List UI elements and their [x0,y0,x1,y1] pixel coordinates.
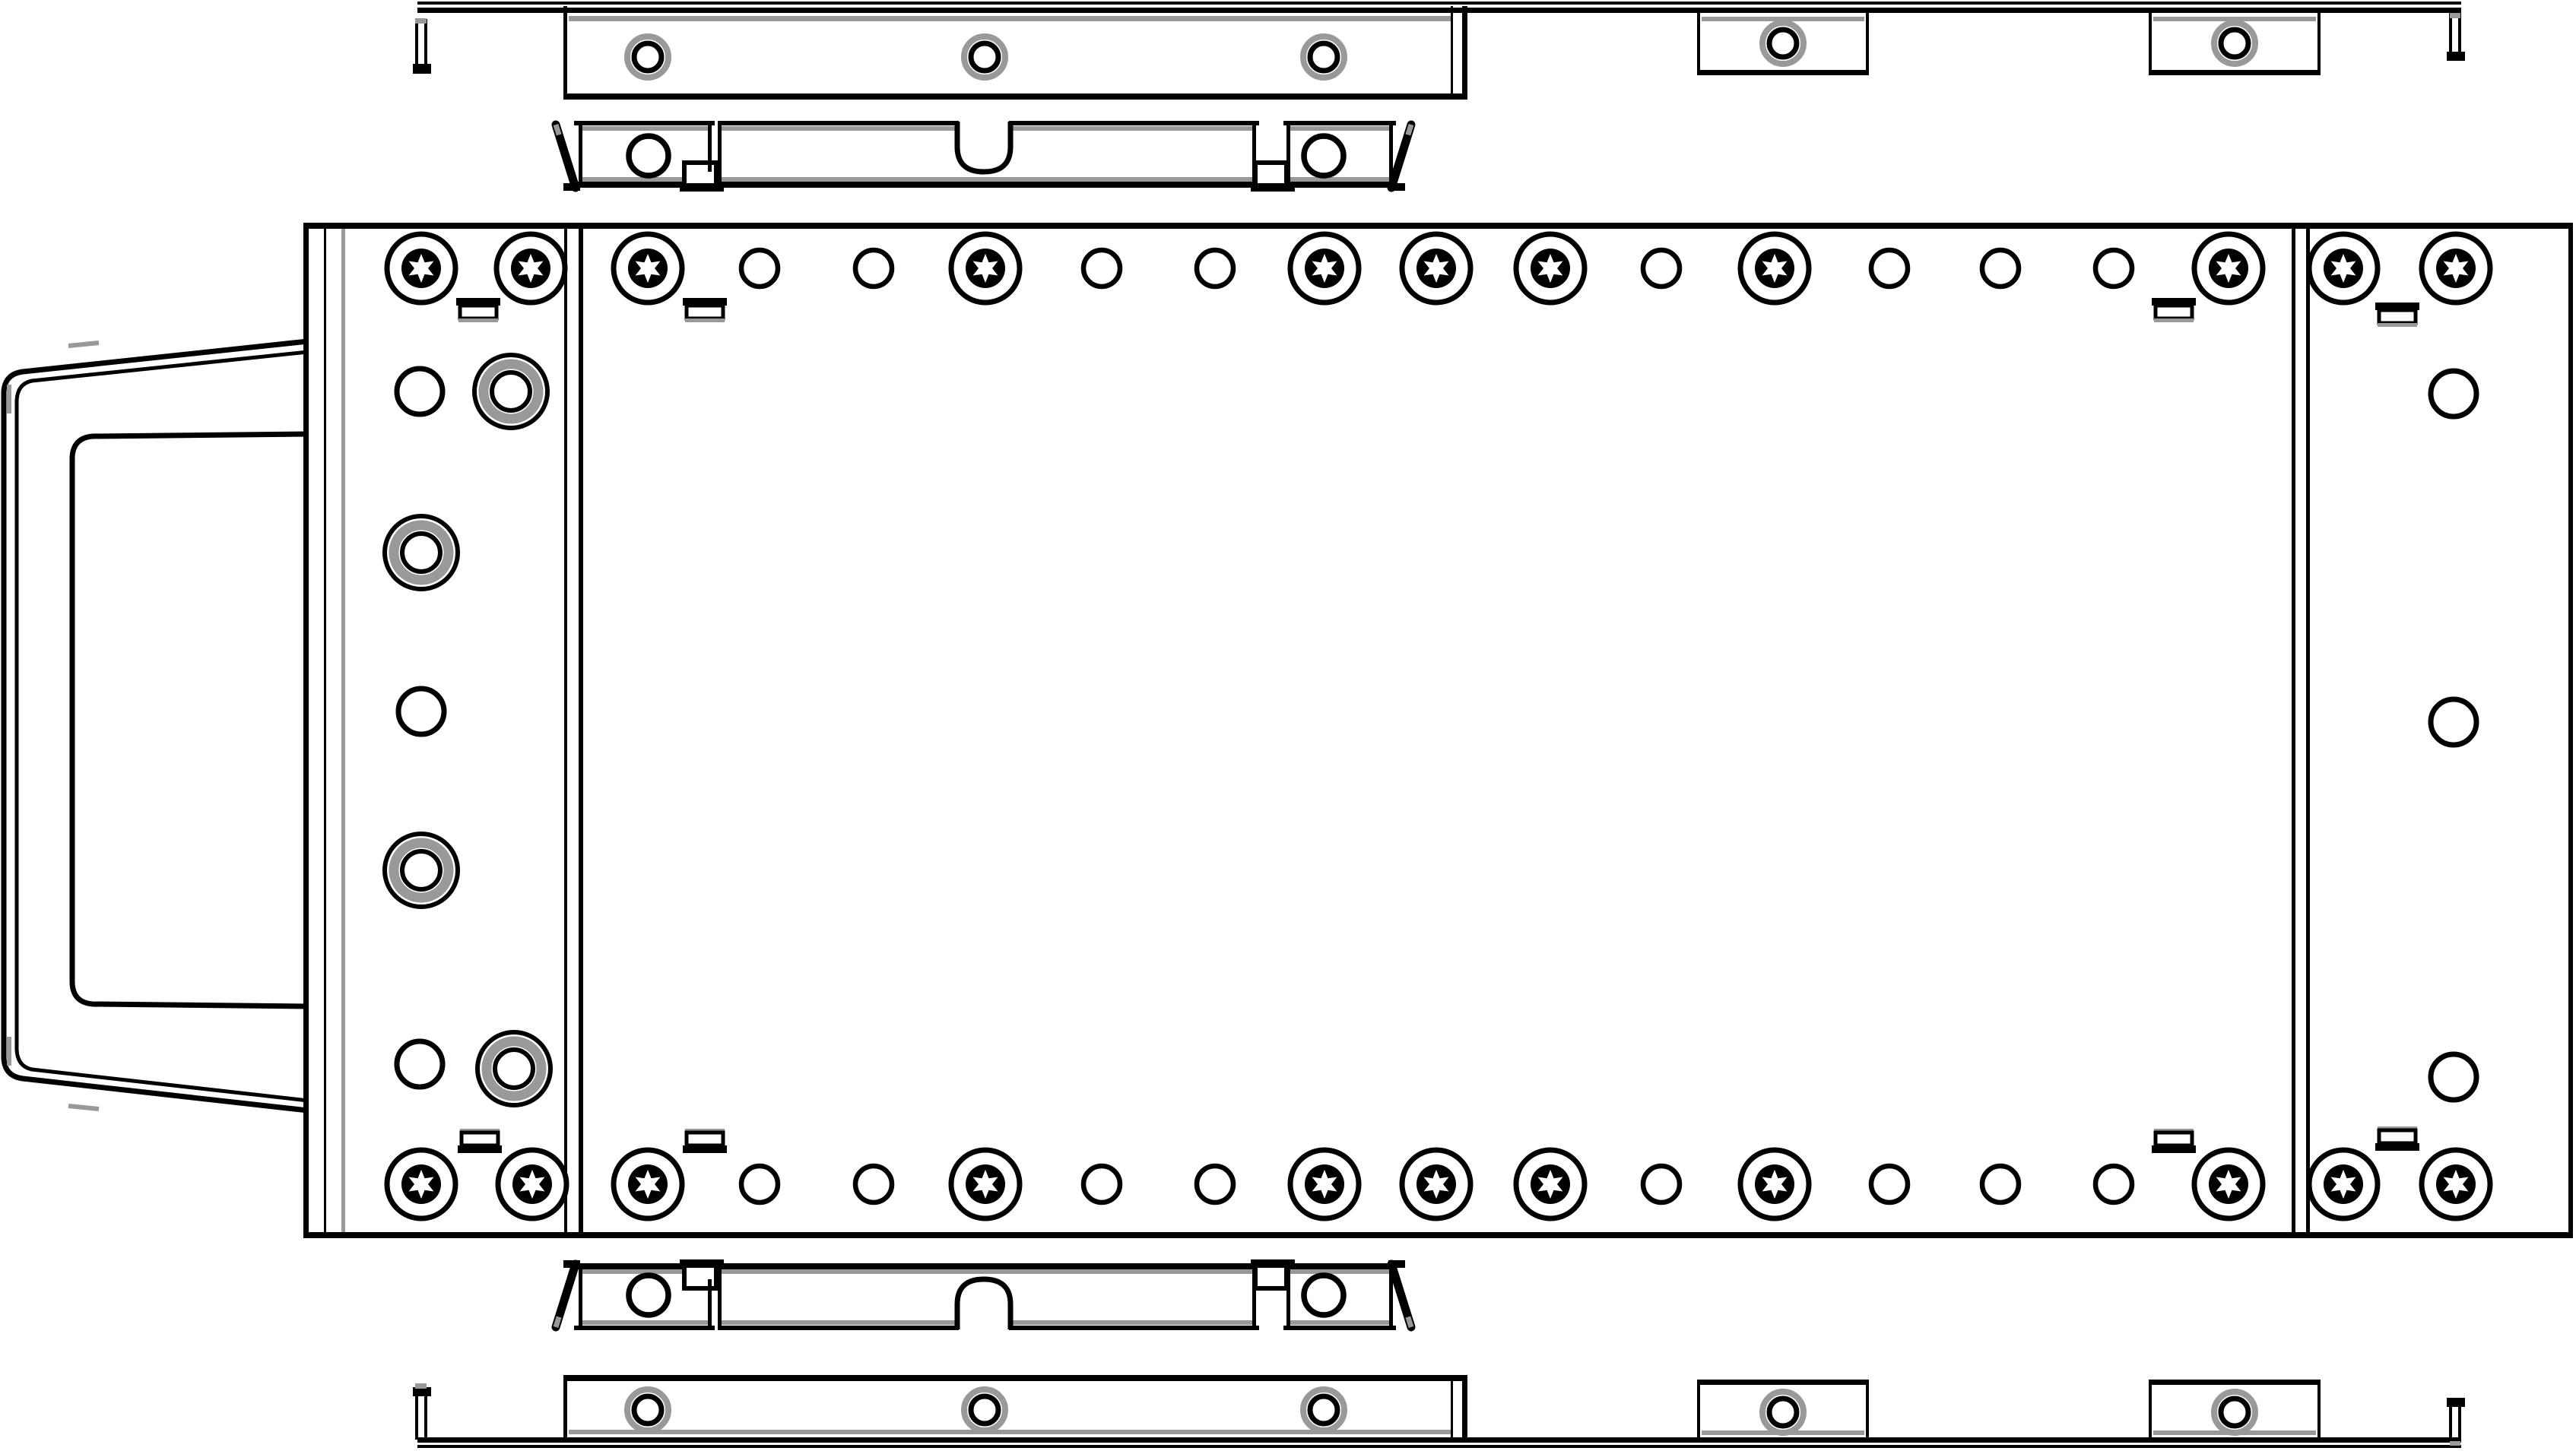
bracket-section-top-edge [574,121,715,125]
screw-hole [398,689,444,734]
clip-tip-highlight [556,125,559,135]
torx-screw [1740,1150,1809,1218]
rail-hook-foot [2447,1398,2465,1407]
chassis-plate [303,223,2573,1238]
rail-hook-highlight [415,18,427,24]
bracket-section-top-accent [1286,1269,1393,1274]
torx-screw [2194,1150,2263,1218]
rail-tab-edge [2317,13,2321,75]
bracket-step-notch-bar [680,1259,724,1268]
panel-divider-left [579,229,583,1232]
screw-hole [1871,250,1908,287]
rail-tab-bottom-edge [2149,70,2321,75]
torx-screw [1516,234,1585,303]
rail-screw-hole [964,36,1005,78]
rail-plate-top-edge [563,1375,1467,1381]
rail-end-hook [415,19,418,70]
rail-screw-hole [627,36,668,78]
bracket-body-top-edge [718,1263,1259,1269]
torx-screw [2422,234,2490,303]
handle-outer-shell [4,341,308,1110]
torx-screw [2309,234,2378,303]
rail-end-hook [424,1392,427,1440]
slot-opening [687,1133,723,1145]
handle-corner-highlight [68,343,99,346]
technical-drawing-canvas [0,0,2576,1451]
grommet-standoff [385,516,458,589]
rail-tab-bottom-edge [1697,70,1869,75]
latch-slot [2152,298,2196,322]
handle-corner-highlight [68,1106,99,1109]
rail-hook-highlight [415,1383,427,1389]
hole-inner-ring [1769,1399,1797,1426]
torx-screw [387,234,455,303]
bracket-section-edge [1389,123,1393,185]
screw-hole [1643,1166,1680,1202]
bracket-section-top-edge [1283,121,1396,125]
slot-thick-edge [2152,1145,2196,1153]
screw-hole [397,1041,443,1087]
rail-screw-hole [964,1389,1005,1430]
slot-accent-edge [2154,318,2194,322]
rail-screw-hole [2214,1392,2255,1433]
bracket-section-edge [579,1266,582,1328]
screw-hole [2095,250,2132,287]
torx-screw [2194,234,2263,303]
rail-hook-foot [2447,52,2465,61]
grommet-standoff [474,355,547,428]
bracket-u-notch [957,1279,1010,1329]
chassis-left-inner-line [324,227,326,1234]
bracket-section-top-edge [1283,1263,1396,1269]
rail-top-strip [417,2,2461,5]
chassis-top-edge [303,223,2573,229]
rail-end-hook [2449,13,2452,55]
screw-hole [1643,250,1680,287]
torx-screw [2309,1150,2378,1218]
bracket-step-notch-bar [680,183,724,192]
screw-hole [741,250,778,287]
hole-inner-ring [1769,30,1797,57]
bracket-step-notch-bar [1251,183,1295,192]
screw-hole [1083,250,1120,287]
hole-inner-ring [971,43,998,71]
screw-hole [1083,1166,1120,1202]
screw-hole [1982,1166,2019,1202]
latch-slot [683,1129,727,1153]
screw-hole [855,1166,892,1202]
bottom-mounting-rail [413,1375,2465,1448]
hole-inner-ring [634,1396,661,1424]
bracket-section-edge [1389,1266,1393,1328]
hole-inner-ring [971,1396,998,1424]
torx-screw [498,1150,566,1218]
latch-slot [458,1129,502,1153]
chassis-bottom-edge [303,1232,2573,1238]
slot-thick-edge [458,1145,502,1153]
rail-tab-edge [2149,13,2152,75]
hole-inner-ring [1310,1396,1337,1424]
rail-plate-accent-line [569,16,1451,21]
torx-screw [614,1150,682,1218]
slot-opening [2156,1133,2192,1145]
torx-screw [2422,1150,2490,1218]
standoff-inner-ring [492,372,530,410]
rail-tab-top-edge [2149,1380,2321,1385]
chassis-right-edge [2568,223,2573,1238]
hole-inner-ring [2221,30,2248,57]
rail-plate-right-edge [1462,6,1467,99]
screw-hole [1304,136,1344,176]
rail-tab-edge [1866,1382,1869,1440]
hole-inner-ring [634,43,661,71]
rail-screw-hole [2214,23,2255,64]
rail-end-hook [415,1392,418,1440]
rail-end-hook [2458,13,2461,55]
rail-end-hook [2458,1402,2461,1440]
clip-tip-highlight [556,1317,559,1327]
bracket-section-bottom-edge [1283,182,1396,188]
screw-hole [2431,699,2476,745]
screw-hole [1304,1275,1344,1315]
rail-hook-highlight [2450,1441,2460,1446]
screw-hole [2431,371,2476,417]
chassis-left-edge [303,223,309,1238]
panel-divider-right [2306,229,2310,1232]
latch-slot [2375,1126,2419,1151]
latch-slot [683,298,727,322]
rail-screw-hole [1303,36,1344,78]
standoff-inner-ring [495,1050,533,1088]
screw-hole [855,250,892,287]
latch-slot [2375,303,2419,327]
rail-plate-left-edge [563,1377,567,1443]
torx-screw [1516,1150,1585,1218]
rail-top-bar [417,8,2461,13]
rail-tab-edge [1697,1382,1700,1440]
chassis-left-accent-line [341,229,345,1232]
rail-hook-foot [413,64,431,74]
screw-hole [397,369,443,414]
rail-tab-edge [1697,13,1700,75]
clip-tip-highlight [1408,1317,1411,1327]
rail-plate-right-line [1451,1377,1453,1443]
rail-plate-left-edge [563,6,567,99]
bracket-clip-foot [563,1260,580,1268]
panel-divider-left [564,229,567,1232]
latch-slot [2152,1129,2196,1153]
bracket-clip-foot [1388,183,1405,191]
chassis-face [303,223,2573,1238]
rail-screw-hole [627,1389,668,1430]
bracket-body-top-accent [722,1269,1255,1274]
slot-accent-edge [685,318,725,322]
rail-screw-hole [1303,1389,1344,1430]
screw-hole [629,1275,668,1315]
slot-thick-edge [683,1145,727,1153]
screw-hole [1197,250,1233,287]
bracket-u-notch [957,122,1010,172]
bracket-section-bottom-edge [574,1326,715,1330]
torx-screw [614,234,682,303]
standoff-inner-ring [402,534,440,572]
rail-plate-right-line [1451,6,1453,99]
slot-accent-edge [2378,323,2417,327]
bracket-clip-foot [563,183,580,191]
torx-screw [1402,1150,1470,1218]
screw-hole [1197,1166,1233,1202]
rail-screw-hole [1762,23,1804,64]
rail-plate-right-edge [1462,1377,1467,1443]
rail-bottom-bar [417,1437,2461,1443]
torx-screw [1290,234,1359,303]
torx-screw [1402,234,1470,303]
hole-inner-ring [1310,43,1337,71]
clip-tip-highlight [1408,125,1411,135]
bracket-section-top-accent [579,126,712,131]
bracket-section-bottom-accent [1286,177,1393,182]
latch-slot [456,298,500,322]
slot-opening [2379,310,2416,323]
screw-hole [741,1166,778,1202]
torx-screw [1290,1150,1359,1218]
bracket-section-bottom-accent [1286,1320,1393,1325]
screw-hole [2431,1054,2476,1100]
torx-screw [951,1150,1020,1218]
rail-tab-top-edge [1697,1380,1869,1385]
bracket-section-bottom-accent [579,1320,712,1325]
standoff-inner-ring [402,851,440,889]
screw-hole [629,136,668,176]
torx-screw [951,234,1020,303]
bracket-section-bottom-edge [1283,1326,1396,1330]
rail-tab-edge [2317,1382,2321,1440]
rail-hook-highlight [2450,13,2460,18]
screw-hole [2095,1166,2132,1202]
slot-thick-edge [2375,1143,2419,1151]
rail-bottom-strip [417,1445,2461,1448]
bracket-section-top-accent [1286,126,1393,131]
bracket-body-bottom-accent [722,177,1255,182]
bracket-step-notch-bar [1251,1259,1295,1268]
rail-tab-edge [2149,1382,2152,1440]
hole-inner-ring [2221,1399,2248,1426]
rail-tab-edge [1866,13,1869,75]
bracket-section-edge [579,123,582,185]
panel-divider-right [2292,229,2295,1232]
rail-end-hook [2449,1402,2452,1440]
grommet-standoff [477,1032,550,1105]
rail-plate-bottom-edge [563,93,1467,100]
bracket-clip-foot [1388,1260,1405,1268]
rail-screw-hole [1762,1392,1804,1433]
torx-screw [387,1150,455,1218]
torx-screw [496,234,565,303]
front-handle-bezel [4,341,308,1110]
slot-opening [462,1133,498,1145]
slot-opening [460,306,496,318]
slot-opening [687,306,723,318]
bracket-body-bottom-edge [718,182,1259,188]
grommet-standoff [385,834,458,907]
screw-hole [1982,250,2019,287]
rail-end-hook [424,19,427,70]
screw-hole [1871,1166,1908,1202]
slot-opening [2379,1130,2416,1143]
slot-opening [2156,306,2192,318]
torx-screw [1740,234,1809,303]
slot-accent-edge [458,318,498,322]
chassis-assembly-drawing [0,0,2576,1451]
